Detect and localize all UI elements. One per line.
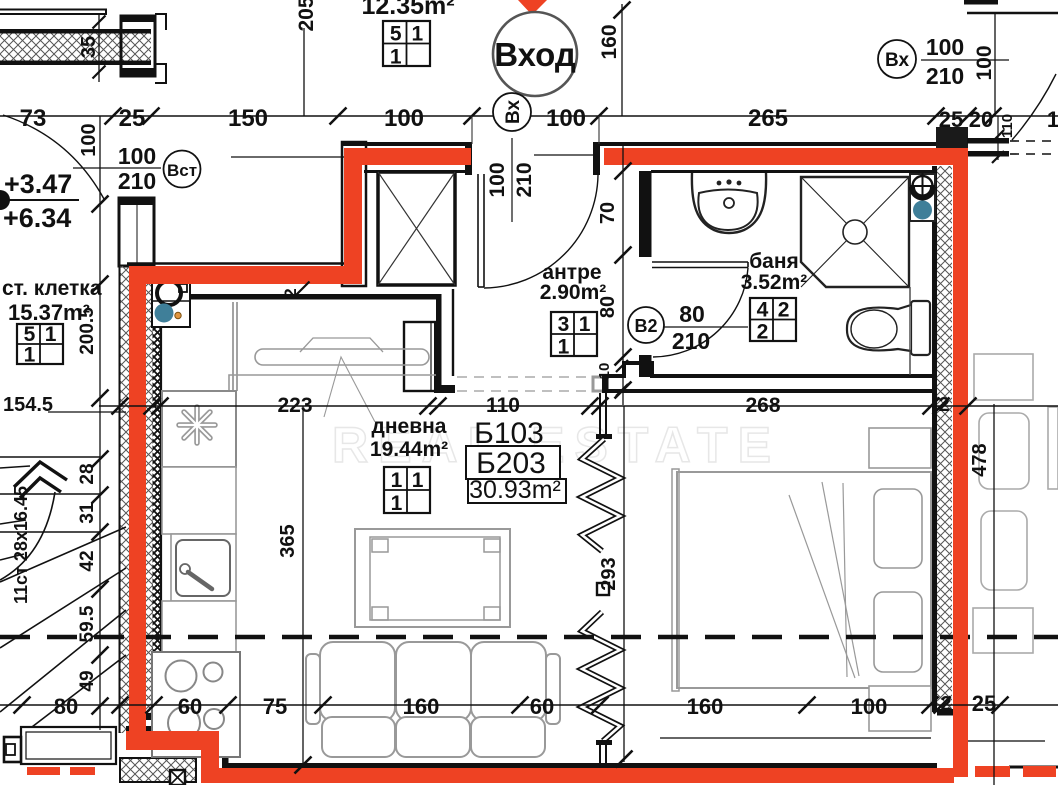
svg-text:42: 42 (77, 550, 98, 571)
svg-text:25: 25 (119, 105, 146, 132)
svg-text:35: 35 (78, 36, 100, 58)
svg-text:15.37m²: 15.37m² (8, 300, 90, 325)
svg-text:3: 3 (558, 313, 570, 336)
svg-text:478: 478 (969, 443, 991, 476)
svg-text:11ст 28x16.45: 11ст 28x16.45 (11, 486, 31, 604)
svg-text:Вход: Вход (494, 36, 576, 73)
svg-text:205: 205 (295, 0, 318, 32)
svg-text:160: 160 (687, 694, 724, 719)
svg-text:268: 268 (745, 394, 780, 417)
svg-text:1: 1 (579, 313, 591, 336)
svg-text:31: 31 (77, 502, 98, 524)
svg-text:80: 80 (679, 301, 705, 327)
svg-text:110: 110 (999, 114, 1016, 138)
svg-text:210: 210 (118, 168, 156, 194)
svg-text:160: 160 (598, 24, 621, 59)
svg-text:19.44m²: 19.44m² (370, 438, 448, 461)
svg-text:265: 265 (748, 105, 788, 132)
svg-text:1: 1 (1047, 107, 1058, 132)
svg-text:1: 1 (391, 492, 403, 515)
svg-text:110: 110 (486, 394, 520, 417)
svg-text:12.35m²: 12.35m² (361, 0, 454, 20)
svg-text:Вх: Вх (503, 100, 524, 124)
svg-text:1: 1 (24, 344, 36, 367)
svg-text:2: 2 (281, 288, 300, 297)
svg-text:70: 70 (597, 202, 619, 224)
svg-text:100: 100 (546, 105, 586, 132)
svg-text:1: 1 (390, 45, 402, 68)
svg-text:210: 210 (513, 162, 536, 197)
svg-text:2.90m²: 2.90m² (540, 281, 607, 304)
svg-text:Вх: Вх (885, 50, 909, 71)
svg-text:223: 223 (277, 394, 312, 417)
svg-text:28: 28 (77, 463, 98, 484)
svg-text:100: 100 (118, 143, 156, 169)
svg-text:10: 10 (596, 363, 613, 380)
svg-text:1: 1 (411, 22, 423, 45)
svg-text:5: 5 (390, 22, 402, 45)
svg-text:3.52m²: 3.52m² (741, 271, 808, 294)
svg-text:100: 100 (384, 105, 424, 132)
svg-text:100: 100 (973, 45, 996, 80)
svg-text:210: 210 (672, 328, 710, 354)
svg-text:150: 150 (228, 105, 268, 132)
svg-text:1: 1 (45, 323, 57, 346)
svg-text:100: 100 (851, 694, 888, 719)
svg-text:1: 1 (558, 335, 570, 358)
svg-text:2: 2 (938, 394, 949, 416)
svg-text:100: 100 (486, 162, 509, 197)
svg-text:59.5: 59.5 (77, 605, 98, 642)
svg-text:2: 2 (940, 693, 951, 715)
svg-text:160: 160 (403, 694, 440, 719)
svg-text:100: 100 (78, 123, 100, 156)
svg-text:100: 100 (926, 34, 964, 60)
svg-text:2: 2 (778, 298, 790, 321)
svg-text:25: 25 (972, 691, 996, 716)
svg-text:20: 20 (969, 107, 993, 132)
svg-text:4: 4 (757, 298, 769, 321)
svg-text:154.5: 154.5 (3, 394, 53, 416)
svg-text:дневна: дневна (372, 415, 447, 438)
svg-text:73: 73 (20, 105, 47, 132)
svg-text:Вст: Вст (167, 161, 197, 180)
svg-text:30.93m²: 30.93m² (469, 476, 561, 504)
svg-text:ст. клетка: ст. клетка (2, 277, 102, 300)
svg-text:1: 1 (391, 469, 403, 492)
svg-text:210: 210 (926, 63, 964, 89)
svg-text:2: 2 (757, 320, 769, 343)
svg-text:баня: баня (749, 250, 799, 273)
svg-text:75: 75 (263, 694, 287, 719)
svg-text:+6.34: +6.34 (3, 203, 71, 233)
svg-text:60: 60 (178, 694, 202, 719)
svg-text:60: 60 (530, 694, 554, 719)
svg-text:В2: В2 (634, 316, 657, 336)
svg-text:25: 25 (939, 107, 963, 132)
svg-text:293: 293 (598, 557, 620, 590)
svg-text:365: 365 (277, 524, 299, 557)
svg-text:80: 80 (54, 694, 78, 719)
svg-text:49: 49 (77, 670, 98, 691)
svg-text:+3.47: +3.47 (4, 169, 72, 199)
svg-text:1: 1 (412, 469, 424, 492)
